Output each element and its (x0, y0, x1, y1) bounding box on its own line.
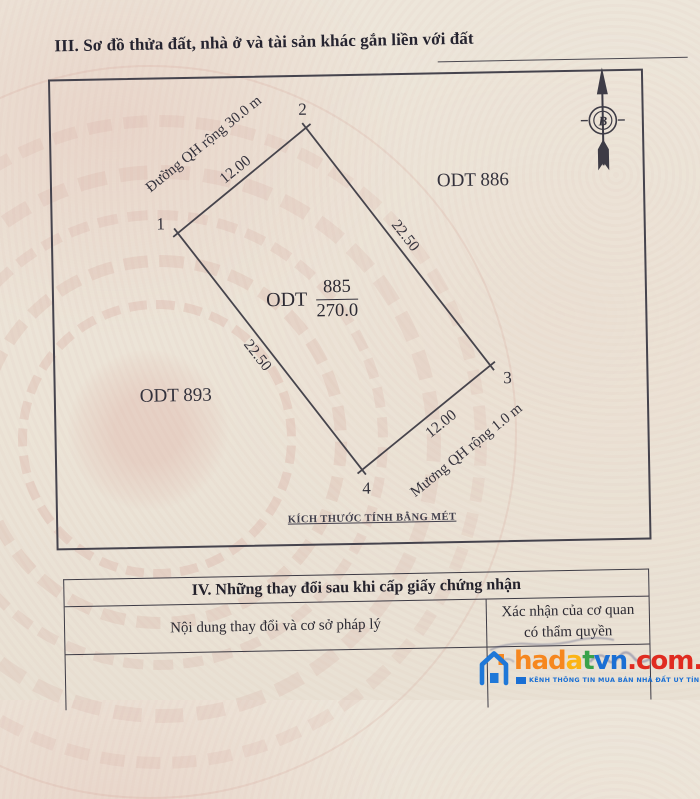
brand-logo: hadatvn.com.vn KÊNH THÔNG TIN MUA BÁN NH… (477, 648, 700, 686)
house-icon (477, 648, 511, 686)
tagline-box (516, 677, 526, 684)
brand-tagline: KÊNH THÔNG TIN MUA BÁN NHÀ ĐẤT UY TÍN (516, 676, 700, 684)
brand-text: hadatvn.com.vn (514, 648, 700, 674)
photo-overlay: hadatvn.com.vn KÊNH THÔNG TIN MUA BÁN NH… (0, 0, 700, 700)
